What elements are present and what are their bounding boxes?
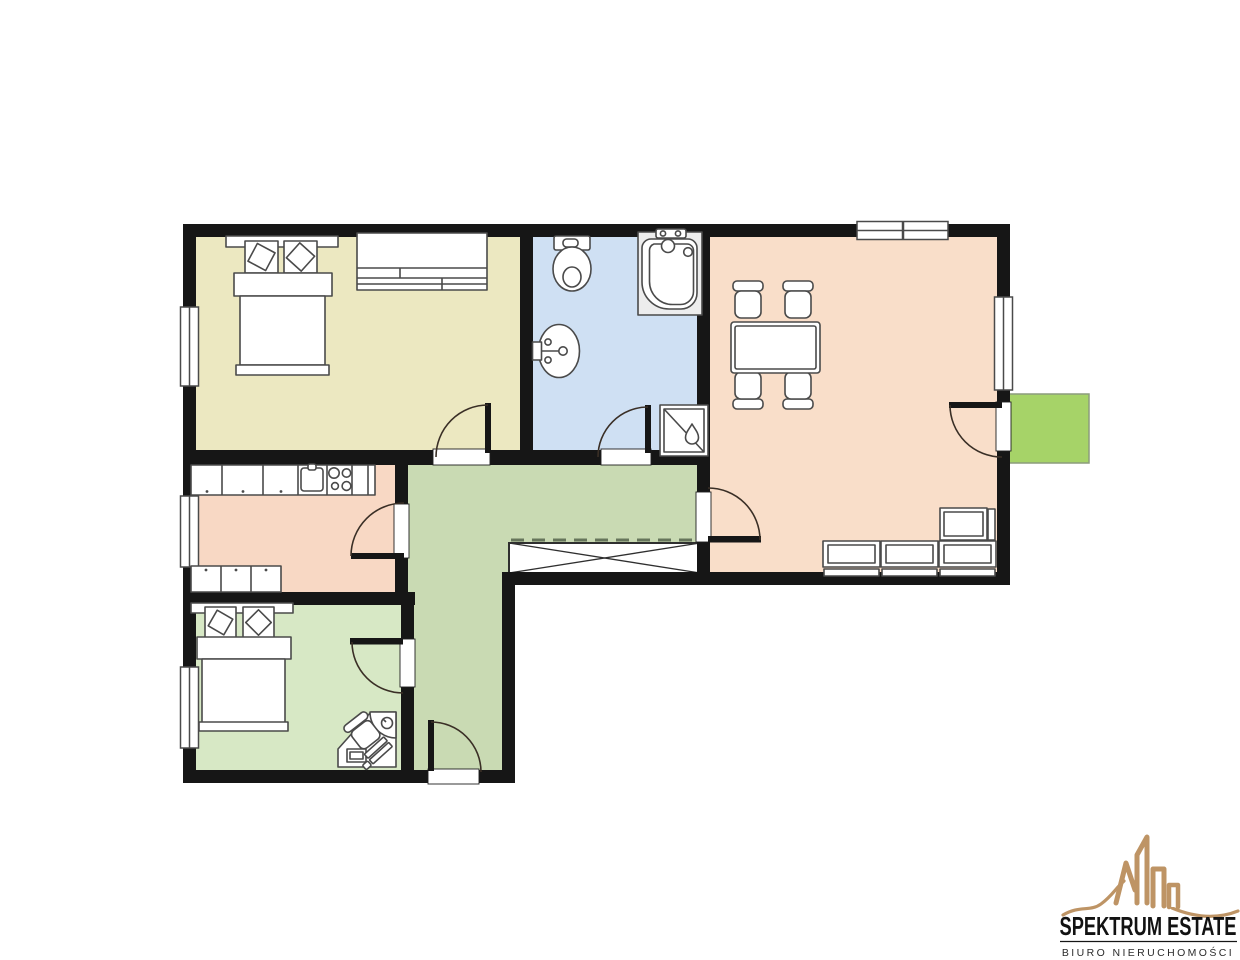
sofa-backrest [988,509,995,540]
bathtub-icon [638,229,702,315]
window-living-top [857,222,948,240]
logo-subtitle: BIURO NIERUCHOMOŚCI [1062,946,1234,959]
threshold-balcony [996,402,1011,451]
built-in-wardrobe-icon [509,540,700,573]
bathtub-spout [662,240,675,253]
room-hallway [401,455,704,777]
sofa-backrest [824,569,879,576]
sink-faucet-head [559,347,567,355]
monitor-screen [350,752,363,759]
burner [332,483,339,490]
handle-dot [265,569,268,572]
logo-building-icon [1063,837,1238,916]
dining-chair-icon [783,372,813,409]
handle-dot [205,569,208,572]
handle-dot [280,490,283,493]
bathtub-faucet-knob [660,231,665,236]
toilet-button [563,239,578,247]
window-kitchen [181,496,199,567]
sideboard-body [357,233,487,290]
bed-duvet [240,296,325,365]
bathtub-faucet-knob [675,231,680,236]
chair-back [783,281,813,291]
shower-icon [660,405,708,456]
logo-title: SPEKTRUM ESTATE [1060,911,1237,941]
threshold-bedroom-2 [400,639,415,687]
logo-tower-peak [1116,863,1135,903]
sofa-backrest [940,569,995,576]
logo-tower-mid [1153,869,1164,906]
chair-back [733,281,763,291]
sink-faucet [308,464,316,470]
threshold-bathroom [601,449,651,465]
sofa-cushion [944,512,983,536]
bed-footboard [236,365,329,375]
window-bedroom-2 [181,667,199,748]
window-bedroom-1 [181,307,199,386]
wall-bedroom1-bathroom [520,224,533,465]
dining-table-inner [735,326,816,369]
chair-back [783,399,813,409]
sink-bowl [301,468,323,491]
door-leaf-bedroom-2 [350,638,403,645]
door-leaf-balcony [949,402,1002,408]
chair-seat [735,372,761,399]
bed-blanket-band [234,273,332,296]
bed-footboard [199,722,288,731]
bed-headboard [226,236,338,247]
bed-blanket-band [197,637,291,659]
burner [342,469,350,477]
chair-seat [785,372,811,399]
sink-mount [533,342,542,360]
door-leaf-entrance [428,720,434,771]
chair-seat [735,291,761,318]
door-leaf-kitchen [351,553,404,559]
sink-tap-handle [545,357,551,363]
sofa-backrest [882,569,937,576]
chair-back [733,399,763,409]
burner [329,468,339,478]
handle-dot [235,569,238,572]
handle-dot [206,490,209,493]
handle-dot [242,490,245,493]
floor-plan-canvas: SPEKTRUM ESTATE BIURO NIERUCHOMOŚCI [0,0,1240,960]
threshold-kitchen [394,504,409,558]
logo-tower-tall [1137,837,1147,903]
bathtub-drain [684,248,693,257]
sideboard-icon [357,233,487,290]
toilet-bowl-inner [563,267,581,287]
dining-chair-icon [733,372,763,409]
kitchen-sink-icon [301,464,323,491]
dining-chair-icon [783,281,813,318]
balcony [1008,394,1089,463]
sink-tap-handle [545,339,551,345]
chair-seat [785,291,811,318]
sofa-cushion [828,545,875,563]
threshold-living-room [696,492,711,542]
threshold-bedroom-1 [433,449,490,465]
brand-logo: SPEKTRUM ESTATE BIURO NIERUCHOMOŚCI [1060,837,1239,959]
dining-chair-icon [733,281,763,318]
wall-bedroom2-hallway [401,592,414,783]
wall-hallway-right [502,572,515,783]
door-leaf-bedroom-1 [485,403,491,453]
bed-duvet [202,659,285,723]
threshold-entrance [428,769,479,784]
sofa-cushion [944,545,991,563]
window-living-right [995,297,1013,390]
logo-tower-small [1169,885,1178,907]
toilet-icon [553,236,591,291]
door-leaf-living-room [708,536,761,543]
door-leaf-bathroom [645,405,651,453]
sofa-cushion [886,545,933,563]
burner [342,482,351,491]
